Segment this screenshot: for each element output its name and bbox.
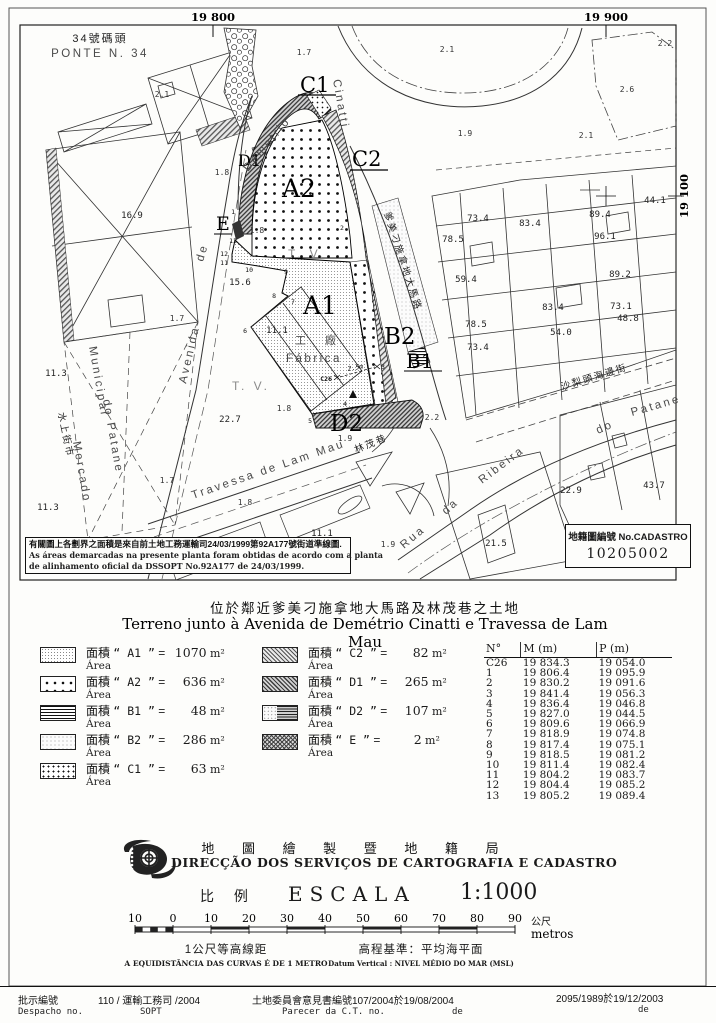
legend-area-zh: 面積 xyxy=(86,646,110,660)
legend-swatch-c1 xyxy=(40,763,76,779)
legend-code: “ D1 ” xyxy=(335,675,377,689)
col-header-p: P (m) xyxy=(597,642,672,658)
spot-elevation: 1.9 xyxy=(381,540,396,549)
alignment-note-box: 有關圖上各劃界之面積是來自前土地工務運輸司24/03/1999第92A177號街… xyxy=(25,537,351,574)
legend-item-d2: 面積 “ D2 ” = 107 m² Área xyxy=(262,704,482,733)
legend-area-zh: 面積 xyxy=(308,646,332,660)
boundary-point-label: 6 xyxy=(243,327,247,335)
legend-value: 63 xyxy=(169,762,207,775)
legend-item-b2: 面積 “ B2 ” = 286 m² Área xyxy=(40,733,260,762)
building-height: 43.7 xyxy=(643,481,665,491)
despacho-label-pt: Despacho no. xyxy=(18,1007,83,1017)
legend-code: “ B1 ” xyxy=(113,704,155,718)
spot-elevation: 1.9 xyxy=(458,129,473,138)
note-text-zh: 有關圖上各劃界之面積是來自前土地工務運輸司24/03/1999第92A177號街… xyxy=(29,539,347,550)
legend-area-zh: 面積 xyxy=(86,733,110,747)
legend-unit: m² xyxy=(432,705,447,718)
spot-elevation: 2.6 xyxy=(620,85,635,94)
building-height: 44.1 xyxy=(644,196,666,206)
legend-item-b1: 面積 “ B1 ” = 48 m² Área xyxy=(40,704,260,733)
pier-label-zh: 34號碼頭 xyxy=(72,32,127,45)
grid-label-19900: 19 900 xyxy=(584,10,628,24)
building-height: 83.4 xyxy=(542,303,564,313)
spot-elevation: 1.7 xyxy=(170,314,185,323)
right-city-block xyxy=(432,166,676,418)
label-c1: C1 xyxy=(300,73,329,97)
building-height: 96.1 xyxy=(594,232,616,242)
street-do: do xyxy=(594,419,615,437)
legend-code: “ B2 ” xyxy=(113,733,155,747)
legend-item-e: 面積 “ E ” = 2 m² Área xyxy=(262,733,482,762)
legend-value: 636 xyxy=(169,675,207,688)
legend-area-zh: 面積 xyxy=(308,733,332,747)
spot-elevation: 1.9 xyxy=(338,434,353,443)
legend-eq: = xyxy=(373,733,380,747)
contour-note-zh: 1公尺等高線距 xyxy=(146,941,306,957)
scale-label-pt: ESCALA xyxy=(288,882,416,906)
d2-swatch-right xyxy=(277,706,297,720)
street-travessa: Travessa de Lam Mau xyxy=(190,438,347,502)
parecer-de: de xyxy=(452,1007,463,1017)
boundary-point-label: 8 xyxy=(272,292,276,300)
parecer-label-pt: Parecer da C.T. no. xyxy=(282,1007,385,1017)
building-height: 16.9 xyxy=(121,211,143,221)
legend-unit: m² xyxy=(425,734,440,747)
tv-label-2: T. V. xyxy=(232,379,270,393)
scale-unit-pt: metros xyxy=(531,927,573,941)
building-height: 22.9 xyxy=(560,486,582,496)
table-row: 1319 805.219 089.4 xyxy=(484,791,672,801)
legend-code: “ E ” xyxy=(335,733,370,747)
top-right-roads xyxy=(338,26,676,170)
legend-value: 265 xyxy=(391,675,429,688)
legend-area-zh: 面積 xyxy=(86,762,110,776)
legend-value: 82 xyxy=(391,646,429,659)
building-height: 15.6 xyxy=(229,278,251,288)
street-patane: Patane xyxy=(630,393,683,419)
mercado-yard xyxy=(64,322,198,540)
legend-column-2: 面積 “ C2 ” = 82 m² Área 面積 “ D1 ” = 265 m… xyxy=(262,646,482,762)
building-height: 59.4 xyxy=(455,275,477,285)
legend-eq: = xyxy=(380,646,387,660)
legend-item-d1: 面積 “ D1 ” = 265 m² Área xyxy=(262,675,482,704)
scale-tick: 90 xyxy=(508,912,522,925)
legend-area-pt: Área xyxy=(86,776,225,789)
cadastral-plan-sheet: 19 800 19 900 19 100 34號碼頭 PONTE N. 34 xyxy=(0,0,716,1023)
scale-tick: 10 xyxy=(128,912,142,925)
legend-code: “ C1 ” xyxy=(113,762,155,776)
label-b1: B1 xyxy=(406,349,433,373)
legend-item-c1: 面積 “ C1 ” = 63 m² Área xyxy=(40,762,260,791)
street-da: da xyxy=(440,496,461,517)
spot-elevation: 1.8 xyxy=(238,498,253,507)
cell-m: 19 805.2 xyxy=(521,791,597,801)
label-a1: A1 xyxy=(302,291,337,320)
building-height: 89.4 xyxy=(589,210,611,220)
legend-area-pt: Área xyxy=(86,660,225,673)
spot-elevation: 2.1 xyxy=(579,131,594,140)
col-header-n: N° xyxy=(484,642,521,658)
scale-bar: 10 0 10 20 30 40 50 60 70 80 90 公尺 metro… xyxy=(128,912,573,941)
agency-name-pt: DIRECÇÃO DOS SERVIÇOS DE CARTOGRAFIA E C… xyxy=(171,855,571,870)
boundary-point-label: 7 xyxy=(291,298,295,306)
building-height: 83.4 xyxy=(519,219,541,229)
factory-label-zh: 工 廠 xyxy=(295,333,344,347)
plan-title-zh: 位於鄰近爹美刁施拿地大馬路及林茂巷之土地 xyxy=(165,597,565,617)
legend-unit: m² xyxy=(210,705,225,718)
scale-tick: 70 xyxy=(432,912,446,925)
boundary-point-label: 1 xyxy=(231,208,235,216)
legend-area-pt: Área xyxy=(308,660,447,673)
footer-divider xyxy=(0,986,716,987)
label-a2: A2 xyxy=(281,174,316,203)
legend-area-pt: Área xyxy=(86,689,225,702)
building-height: 22.7 xyxy=(219,415,241,425)
legend-area-zh: 面積 xyxy=(86,675,110,689)
legend-code: “ C2 ” xyxy=(335,646,377,660)
legend-value: 107 xyxy=(391,704,429,717)
legend-unit: m² xyxy=(432,676,447,689)
datum-note-pt: Datum Vertical : NIVEL MÉDIO DO MAR (MSL… xyxy=(306,959,536,968)
boundary-point-label: 12 xyxy=(220,250,228,258)
legend-area-pt: Área xyxy=(308,747,440,760)
legend-area-zh: 面積 xyxy=(308,704,332,718)
legend-code: “ A2 ” xyxy=(113,675,155,689)
boundary-point-label: 3 xyxy=(381,363,385,371)
legend-eq: = xyxy=(380,704,387,718)
legend-code: “ A1 ” xyxy=(113,646,155,660)
legend-eq: = xyxy=(158,675,165,689)
label-e: E xyxy=(216,213,230,235)
parecer-label-zh: 土地委員會意見書編號107/2004於19/08/2004 xyxy=(252,992,454,1007)
spot-elevation: 2.2 xyxy=(425,413,440,422)
legend-value: 286 xyxy=(169,733,207,746)
datum-note-zh: 高程基準：平均海平面 xyxy=(336,941,506,957)
point-c26-label: C26 xyxy=(320,375,332,383)
scale-tick: 10 xyxy=(204,912,218,925)
legend-area-pt: Área xyxy=(308,689,447,702)
scale-tick: 50 xyxy=(356,912,370,925)
scale-ratio: 1:1000 xyxy=(460,880,537,905)
legend-swatch-a2 xyxy=(40,676,76,692)
legend-item-a1: 面積 “ A1 ” = 1070 m² Área xyxy=(40,646,260,675)
spot-elevation: 1.8 xyxy=(277,404,292,413)
legend-swatch-b2 xyxy=(40,734,76,750)
factory-label-pt: Fábrica xyxy=(286,353,342,365)
building-height: 21.5 xyxy=(485,539,507,549)
boundary-point-label: 9 xyxy=(284,268,288,276)
legend-eq: = xyxy=(158,704,165,718)
label-b2: B2 xyxy=(384,324,416,350)
despacho-label-zh: 批示編號 xyxy=(18,992,58,1007)
legend-unit: m² xyxy=(210,647,225,660)
legend-unit: m² xyxy=(432,647,447,660)
legend-area-pt: Área xyxy=(86,747,225,760)
spot-elevation: 2.1 xyxy=(155,90,170,99)
legend-area-pt: Área xyxy=(308,718,447,731)
cadastro-number: 10205002 xyxy=(566,546,690,562)
building-height: 54.0 xyxy=(550,328,572,338)
boundary-point-label: 11 xyxy=(220,259,228,267)
street-beira-mar-zh: 沙梨頭海邊街 xyxy=(559,361,629,393)
coordinate-table-header: N° M (m) P (m) xyxy=(484,642,672,658)
cadastro-number-box: 地籍圖編號 No.CADASTRO 10205002 xyxy=(565,524,691,568)
note-text-pt-1: As áreas demarcadas na presente planta f… xyxy=(29,550,347,561)
street-rua: Rua xyxy=(398,524,428,552)
label-c2: C2 xyxy=(352,147,381,171)
spot-elevation: 1.7 xyxy=(160,476,175,485)
legend-item-c2: 面積 “ C2 ” = 82 m² Área xyxy=(262,646,482,675)
legend-eq: = xyxy=(158,646,165,660)
scale-tick: 0 xyxy=(170,912,177,925)
legend-eq: = xyxy=(158,733,165,747)
note-text-pt-2: de alinhamento oficial da DSSOPT No.92A1… xyxy=(29,561,347,572)
boundary-point-label: 2 xyxy=(340,224,344,232)
legend-eq: = xyxy=(158,762,165,776)
boundary-point-label: 13 xyxy=(229,237,237,245)
building-height: 73.4 xyxy=(467,214,489,224)
tv-label-1: T. V. xyxy=(288,247,326,261)
legend-eq: = xyxy=(380,675,387,689)
building-height: 48.8 xyxy=(617,314,639,324)
building-height: 89.2 xyxy=(609,270,631,280)
col-header-m: M (m) xyxy=(521,642,597,658)
building-height: 73.4 xyxy=(467,343,489,353)
grid-label-19100: 19 100 xyxy=(677,174,691,218)
coordinate-table: N° M (m) P (m) C2619 834.319 054.0 119 8… xyxy=(484,642,672,801)
scale-label-zh: 比 例 xyxy=(200,886,256,906)
building-height: 11.3 xyxy=(37,503,59,513)
despacho-value: 110 / 運輸工務司 /2004 xyxy=(98,992,200,1007)
cell-point: 13 xyxy=(484,791,521,801)
legend-value: 2 xyxy=(384,733,422,746)
legend-unit: m² xyxy=(210,676,225,689)
street-de: de xyxy=(194,242,210,262)
pier-label-pt: PONTE N. 34 xyxy=(51,48,149,60)
legend-swatch-e xyxy=(262,734,298,750)
legend-value: 48 xyxy=(169,704,207,717)
scale-tick: 40 xyxy=(318,912,332,925)
legend-area-zh: 面積 xyxy=(86,704,110,718)
legend-swatch-a1 xyxy=(40,647,76,663)
scale-tick: 80 xyxy=(470,912,484,925)
legend-item-a2: 面積 “ A2 ” = 636 m² Área xyxy=(40,675,260,704)
building-height: 73.1 xyxy=(610,302,632,312)
building-height: 11.1 xyxy=(266,326,288,336)
cobble-strip xyxy=(224,28,258,128)
boundary-point-label: 4 xyxy=(343,400,347,408)
legend-column-1: 面積 “ A1 ” = 1070 m² Área 面積 “ A2 ” = 636… xyxy=(40,646,260,791)
spot-elevation: 2.1 xyxy=(440,45,455,54)
legend-swatch-c2 xyxy=(262,647,298,663)
legend-value: 1070 xyxy=(169,646,207,659)
legend-area-zh: 面積 xyxy=(308,675,332,689)
building-height: 11.3 xyxy=(45,369,67,379)
d2-swatch-left xyxy=(263,706,277,720)
building-height: 78.5 xyxy=(442,235,464,245)
despacho-org: SOPT xyxy=(140,1007,162,1017)
grid-label-19800: 19 800 xyxy=(191,10,235,24)
spot-elevation: 1.8 xyxy=(215,168,230,177)
legend-swatch-d1 xyxy=(262,676,298,692)
spot-elevation: 2.2 xyxy=(658,39,673,48)
boundary-point-label: 10 xyxy=(245,266,253,274)
legend-unit: m² xyxy=(210,734,225,747)
footer-right-value: 2095/1989於19/12/2003 xyxy=(556,990,663,1005)
spot-elevation: 1.7 xyxy=(297,48,312,57)
spot-elevation: 1.8 xyxy=(250,226,265,235)
legend-unit: m² xyxy=(210,763,225,776)
scale-tick: 60 xyxy=(394,912,408,925)
cadastro-label: 地籍圖編號 No.CADASTRO xyxy=(566,529,690,543)
legend-area-pt: Área xyxy=(86,718,225,731)
legend-swatch-b1 xyxy=(40,705,76,721)
building-height: 78.5 xyxy=(465,320,487,330)
mercado-label-1: Mercado xyxy=(70,440,93,503)
scale-tick: 30 xyxy=(280,912,294,925)
boundary-point-label: 5 xyxy=(308,417,312,425)
legend-code: “ D2 ” xyxy=(335,704,377,718)
cell-p: 19 089.4 xyxy=(597,791,672,801)
footer-right-de: de xyxy=(638,1005,649,1015)
scale-tick: 20 xyxy=(242,912,256,925)
legend-swatch-d2 xyxy=(262,705,298,721)
